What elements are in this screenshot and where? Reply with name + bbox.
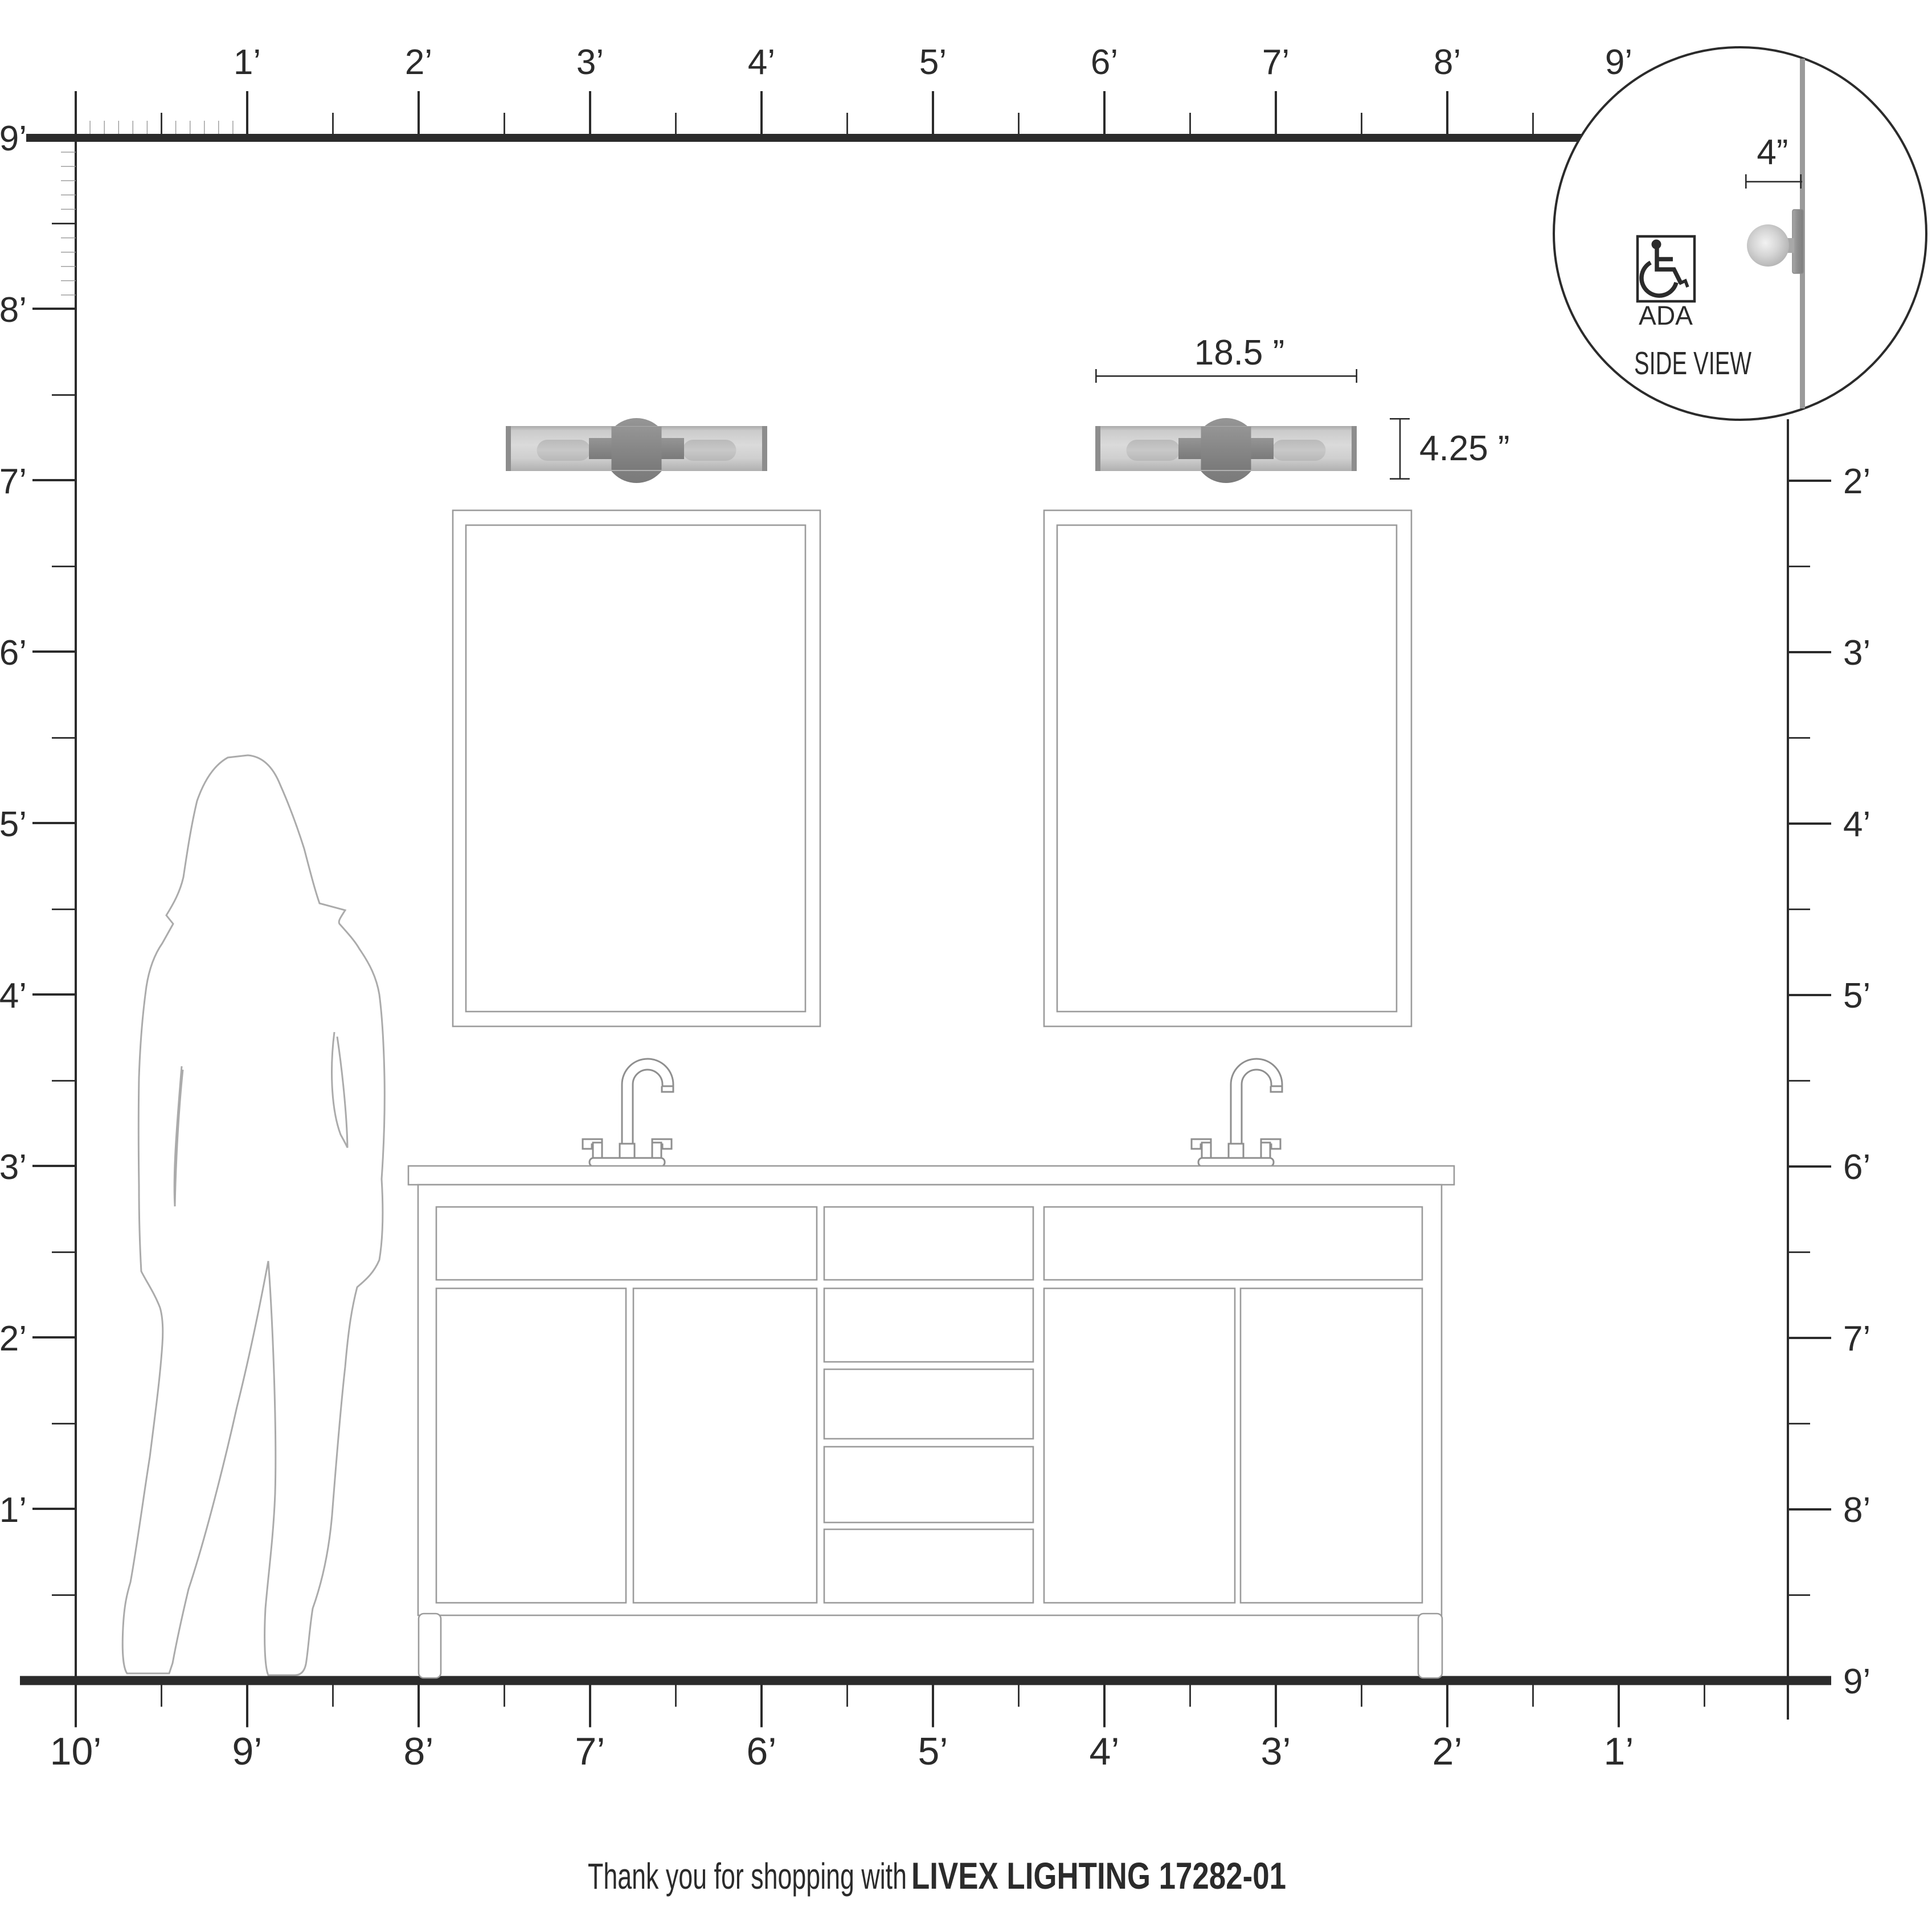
svg-text:5’: 5’	[1843, 976, 1870, 1016]
svg-text:9’: 9’	[0, 119, 27, 158]
svg-text:5’: 5’	[918, 1730, 948, 1773]
svg-text:18.5 ”: 18.5 ”	[1194, 333, 1285, 373]
svg-text:2’: 2’	[1432, 1730, 1463, 1773]
svg-text:9’: 9’	[1843, 1662, 1870, 1701]
svg-text:3’: 3’	[1261, 1730, 1291, 1773]
svg-text:ADA: ADA	[1639, 300, 1693, 330]
svg-text:4’: 4’	[748, 43, 775, 82]
svg-text:9’: 9’	[1605, 43, 1632, 82]
svg-text:3’: 3’	[576, 43, 604, 82]
svg-text:5’: 5’	[0, 805, 27, 844]
svg-text:4’: 4’	[1090, 1730, 1120, 1773]
svg-text:7’: 7’	[0, 462, 27, 501]
svg-text:8’: 8’	[404, 1730, 434, 1773]
svg-text:7’: 7’	[575, 1730, 605, 1773]
svg-text:4’: 4’	[1843, 805, 1870, 844]
svg-text:2’: 2’	[1843, 462, 1870, 501]
svg-text:1’: 1’	[234, 43, 261, 82]
svg-text:8’: 8’	[0, 290, 27, 330]
svg-text:3’: 3’	[1843, 633, 1870, 673]
svg-text:10’: 10’	[50, 1730, 102, 1773]
svg-text:1’: 1’	[0, 1491, 27, 1530]
svg-text:9’: 9’	[232, 1730, 263, 1773]
svg-text:6’: 6’	[1091, 43, 1118, 82]
svg-text:Thank you for shopping with: Thank you for shopping with	[588, 1856, 907, 1897]
svg-text:6’: 6’	[747, 1730, 777, 1773]
svg-text:4.25 ”: 4.25 ”	[1419, 429, 1510, 468]
svg-text:2’: 2’	[0, 1319, 27, 1358]
svg-text:8’: 8’	[1434, 43, 1461, 82]
svg-text:8’: 8’	[1843, 1491, 1870, 1530]
svg-text:SIDE VIEW: SIDE VIEW	[1634, 345, 1751, 382]
svg-text:1’: 1’	[1604, 1730, 1634, 1773]
svg-text:5’: 5’	[919, 43, 947, 82]
svg-text:3’: 3’	[0, 1148, 27, 1187]
svg-text:4’: 4’	[0, 976, 27, 1016]
svg-text:4”: 4”	[1757, 133, 1788, 172]
svg-text:LIVEX LIGHTING 17282-01: LIVEX LIGHTING 17282-01	[911, 1855, 1286, 1897]
svg-text:2’: 2’	[405, 43, 432, 82]
svg-text:7’: 7’	[1262, 43, 1290, 82]
svg-text:6’: 6’	[1843, 1148, 1870, 1187]
svg-text:6’: 6’	[0, 633, 27, 673]
svg-text:7’: 7’	[1843, 1319, 1870, 1358]
